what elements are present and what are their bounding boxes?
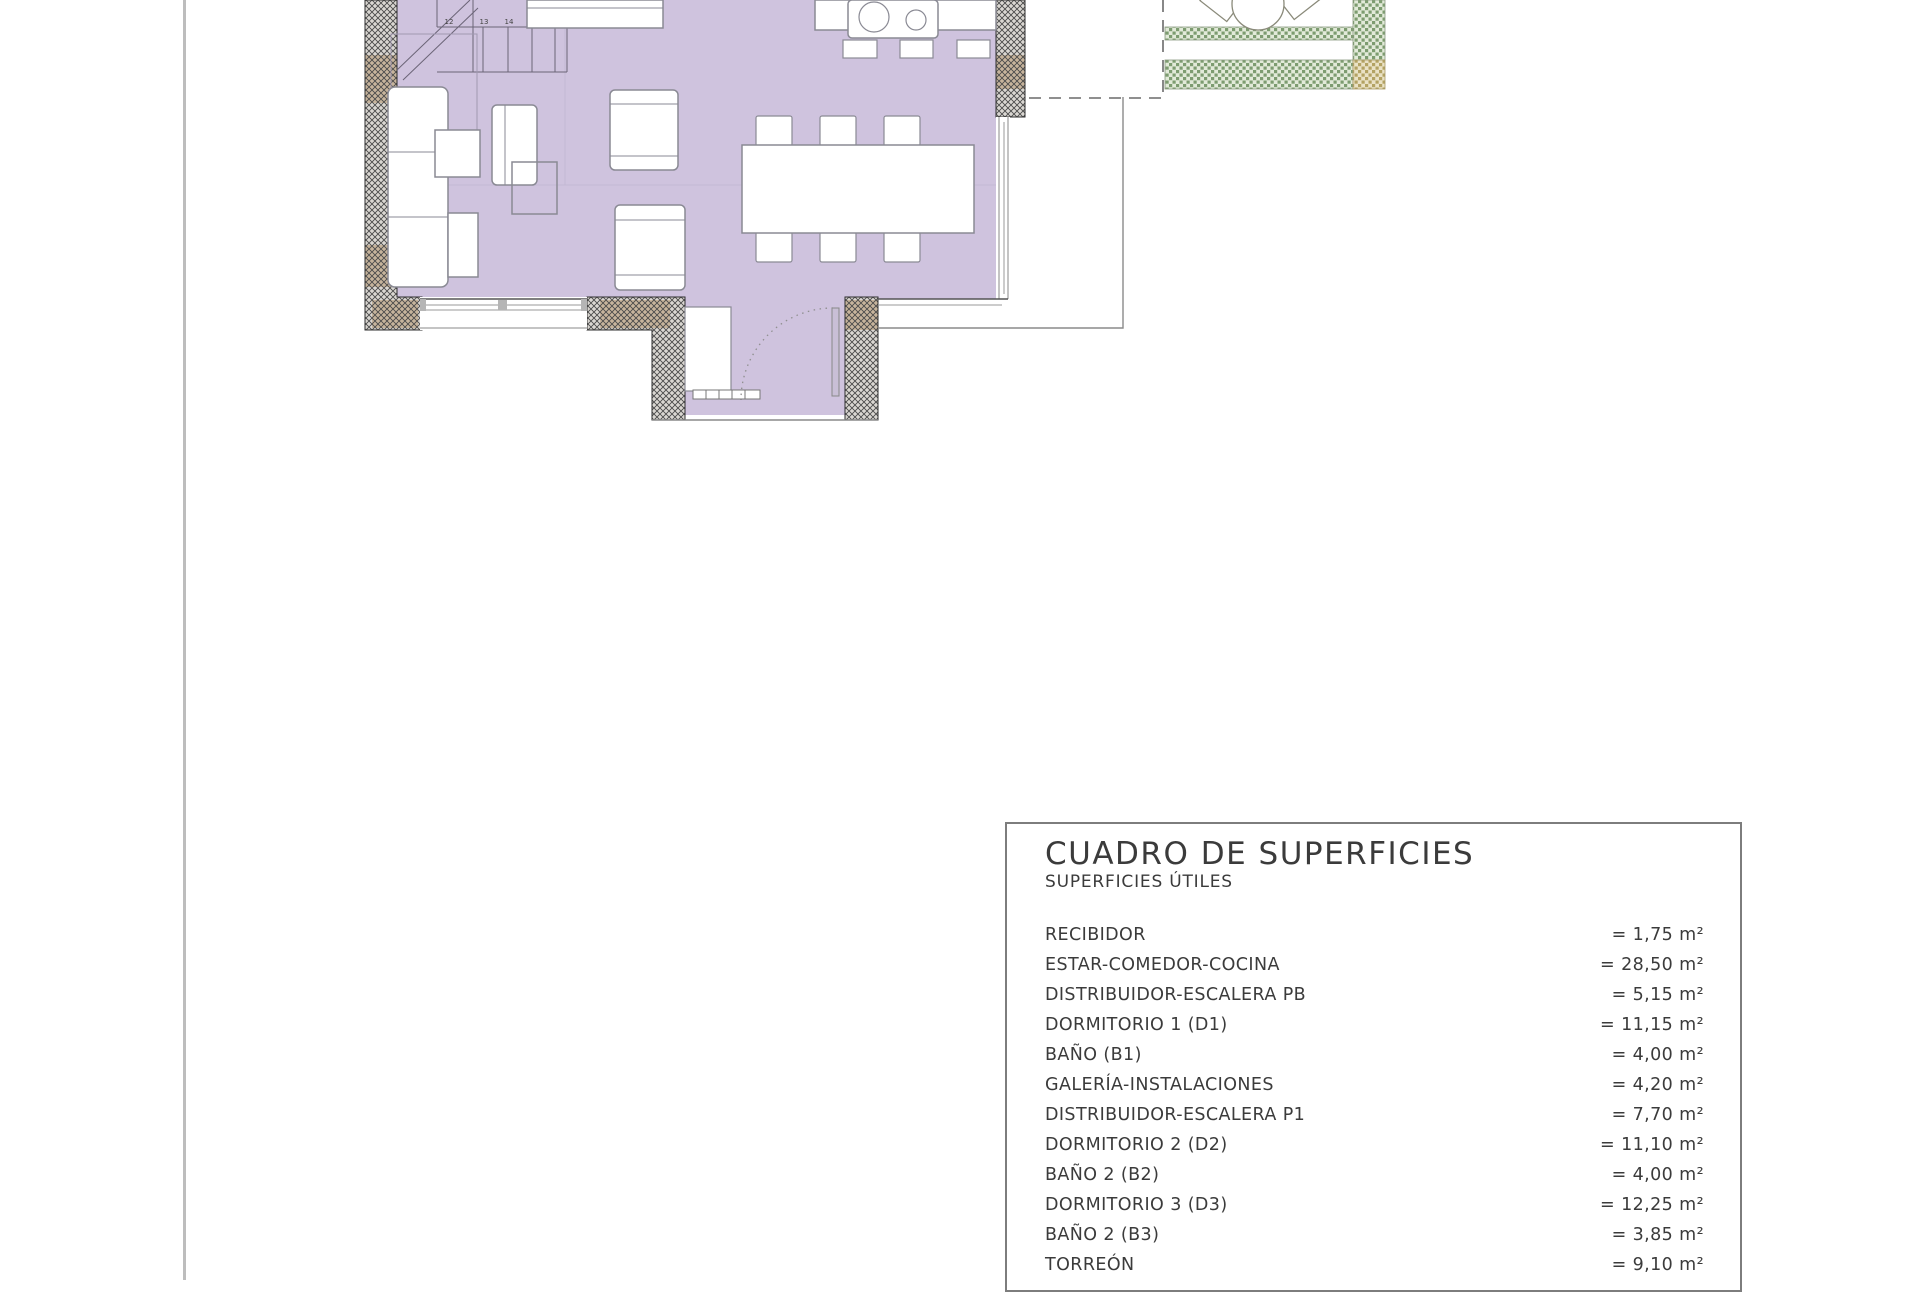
surface-row: DORMITORIO 2 (D2) = 11,10 m² (1045, 1130, 1704, 1160)
dining-table (742, 145, 974, 233)
surface-row: DORMITORIO 1 (D1) = 11,15 m² (1045, 1010, 1704, 1040)
room-area-value: = 11,15 m² (1600, 1015, 1704, 1035)
room-label: TORREÓN (1045, 1255, 1135, 1275)
hedge-corner-tan (1353, 60, 1385, 89)
bar-stools (843, 40, 990, 58)
room-area-value: = 4,00 m² (1612, 1045, 1704, 1065)
right-window (996, 117, 1010, 299)
room-label: BAÑO 2 (B2) (1045, 1165, 1159, 1185)
surface-row: RECIBIDOR = 1,75 m² (1045, 920, 1704, 950)
stair-step-number: 13 (480, 18, 489, 26)
surface-table-rows: RECIBIDOR = 1,75 m² ESTAR-COMEDOR-COCINA… (1045, 920, 1704, 1280)
terrace-table-set (1200, 0, 1321, 30)
surface-row: GALERÍA-INSTALACIONES = 4,20 m² (1045, 1070, 1704, 1100)
entry-threshold (693, 390, 760, 399)
armchair (615, 205, 685, 290)
hedge-band (1165, 60, 1353, 89)
room-area-value: = 11,10 m² (1600, 1135, 1704, 1155)
room-area-value: = 28,50 m² (1600, 955, 1704, 975)
surface-row: BAÑO 2 (B2) = 4,00 m² (1045, 1160, 1704, 1190)
room-area-value: = 4,00 m² (1612, 1165, 1704, 1185)
low-wall-lines (878, 299, 1008, 305)
room-area-value: = 3,85 m² (1612, 1225, 1704, 1245)
room-label: ESTAR-COMEDOR-COCINA (1045, 955, 1280, 975)
room-label: DISTRIBUIDOR-ESCALERA P1 (1045, 1105, 1305, 1125)
armchair (610, 90, 678, 170)
room-area-value: = 4,20 m² (1612, 1075, 1704, 1095)
room-label: DISTRIBUIDOR-ESCALERA PB (1045, 985, 1306, 1005)
stair-step-number: 14 (505, 18, 514, 26)
side-table (435, 130, 480, 177)
room-area-value: = 9,10 m² (1612, 1255, 1704, 1275)
surface-table-title: CUADRO DE SUPERFICIES (1045, 836, 1704, 872)
floor-plan: 12 13 14 15 16 (0, 0, 1500, 500)
surface-row: DISTRIBUIDOR-ESCALERA PB = 5,15 m² (1045, 980, 1704, 1010)
room-area-value: = 7,70 m² (1612, 1105, 1704, 1125)
room-area-value: = 12,25 m² (1600, 1195, 1704, 1215)
vestibule-closet (685, 307, 731, 391)
hedge-band (1353, 0, 1385, 60)
entry-door-leaf (832, 308, 839, 396)
surface-row: BAÑO 2 (B3) = 3,85 m² (1045, 1220, 1704, 1250)
stair-step-number: 12 (445, 18, 454, 26)
room-label: BAÑO (B1) (1045, 1045, 1142, 1065)
room-area-value: = 1,75 m² (1612, 925, 1704, 945)
bottom-window (420, 297, 587, 330)
surface-row: BAÑO (B1) = 4,00 m² (1045, 1040, 1704, 1070)
cabinet (527, 0, 663, 28)
surface-table-subtitle: SUPERFICIES ÚTILES (1045, 872, 1704, 892)
room-label: BAÑO 2 (B3) (1045, 1225, 1159, 1245)
cooktop (848, 0, 938, 38)
drawing-sheet: { "surfaces_table": { "title": "CUADRO D… (0, 0, 1920, 1280)
surface-row: DORMITORIO 3 (D3) = 12,25 m² (1045, 1190, 1704, 1220)
room-label: GALERÍA-INSTALACIONES (1045, 1075, 1274, 1095)
room-label: DORMITORIO 3 (D3) (1045, 1195, 1228, 1215)
surface-row: TORREÓN = 9,10 m² (1045, 1250, 1704, 1280)
room-label: RECIBIDOR (1045, 925, 1146, 945)
dashed-boundary-line (1025, 0, 1163, 98)
surface-row: ESTAR-COMEDOR-COCINA = 28,50 m² (1045, 950, 1704, 980)
room-label: DORMITORIO 2 (D2) (1045, 1135, 1228, 1155)
room-label: DORMITORIO 1 (D1) (1045, 1015, 1228, 1035)
accent-chair (492, 105, 537, 185)
surface-row: DISTRIBUIDOR-ESCALERA P1 = 7,70 m² (1045, 1100, 1704, 1130)
surface-table: CUADRO DE SUPERFICIES SUPERFICIES ÚTILES… (1005, 822, 1742, 1292)
room-area-value: = 5,15 m² (1612, 985, 1704, 1005)
